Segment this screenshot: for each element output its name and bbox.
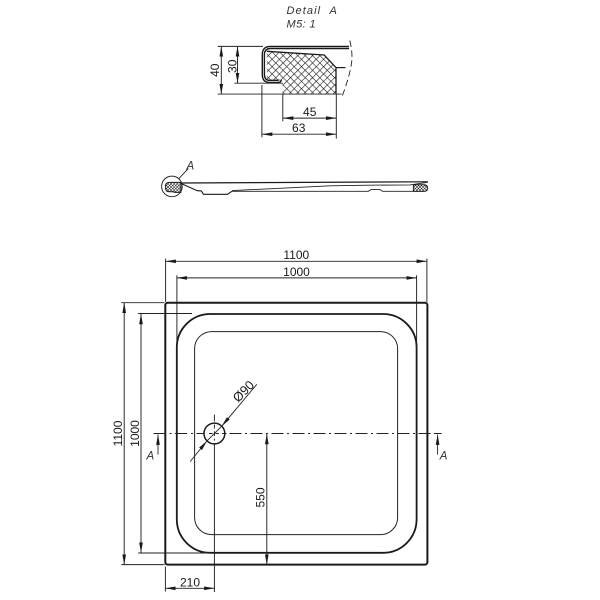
svg-text:550: 550 bbox=[254, 487, 268, 507]
svg-text:210: 210 bbox=[180, 575, 200, 589]
svg-text:Detail A: Detail A bbox=[287, 5, 338, 17]
svg-text:1000: 1000 bbox=[128, 420, 142, 447]
svg-text:1000: 1000 bbox=[283, 265, 310, 279]
svg-text:A: A bbox=[186, 161, 195, 173]
svg-text:30: 30 bbox=[226, 59, 240, 73]
svg-text:45: 45 bbox=[303, 105, 317, 119]
svg-text:A: A bbox=[146, 451, 155, 463]
svg-text:1100: 1100 bbox=[283, 248, 309, 262]
svg-text:A: A bbox=[439, 450, 448, 462]
svg-text:63: 63 bbox=[292, 121, 306, 135]
svg-text:M5: 1: M5: 1 bbox=[287, 19, 317, 31]
svg-text:1100: 1100 bbox=[111, 420, 125, 446]
svg-text:40: 40 bbox=[208, 63, 222, 77]
